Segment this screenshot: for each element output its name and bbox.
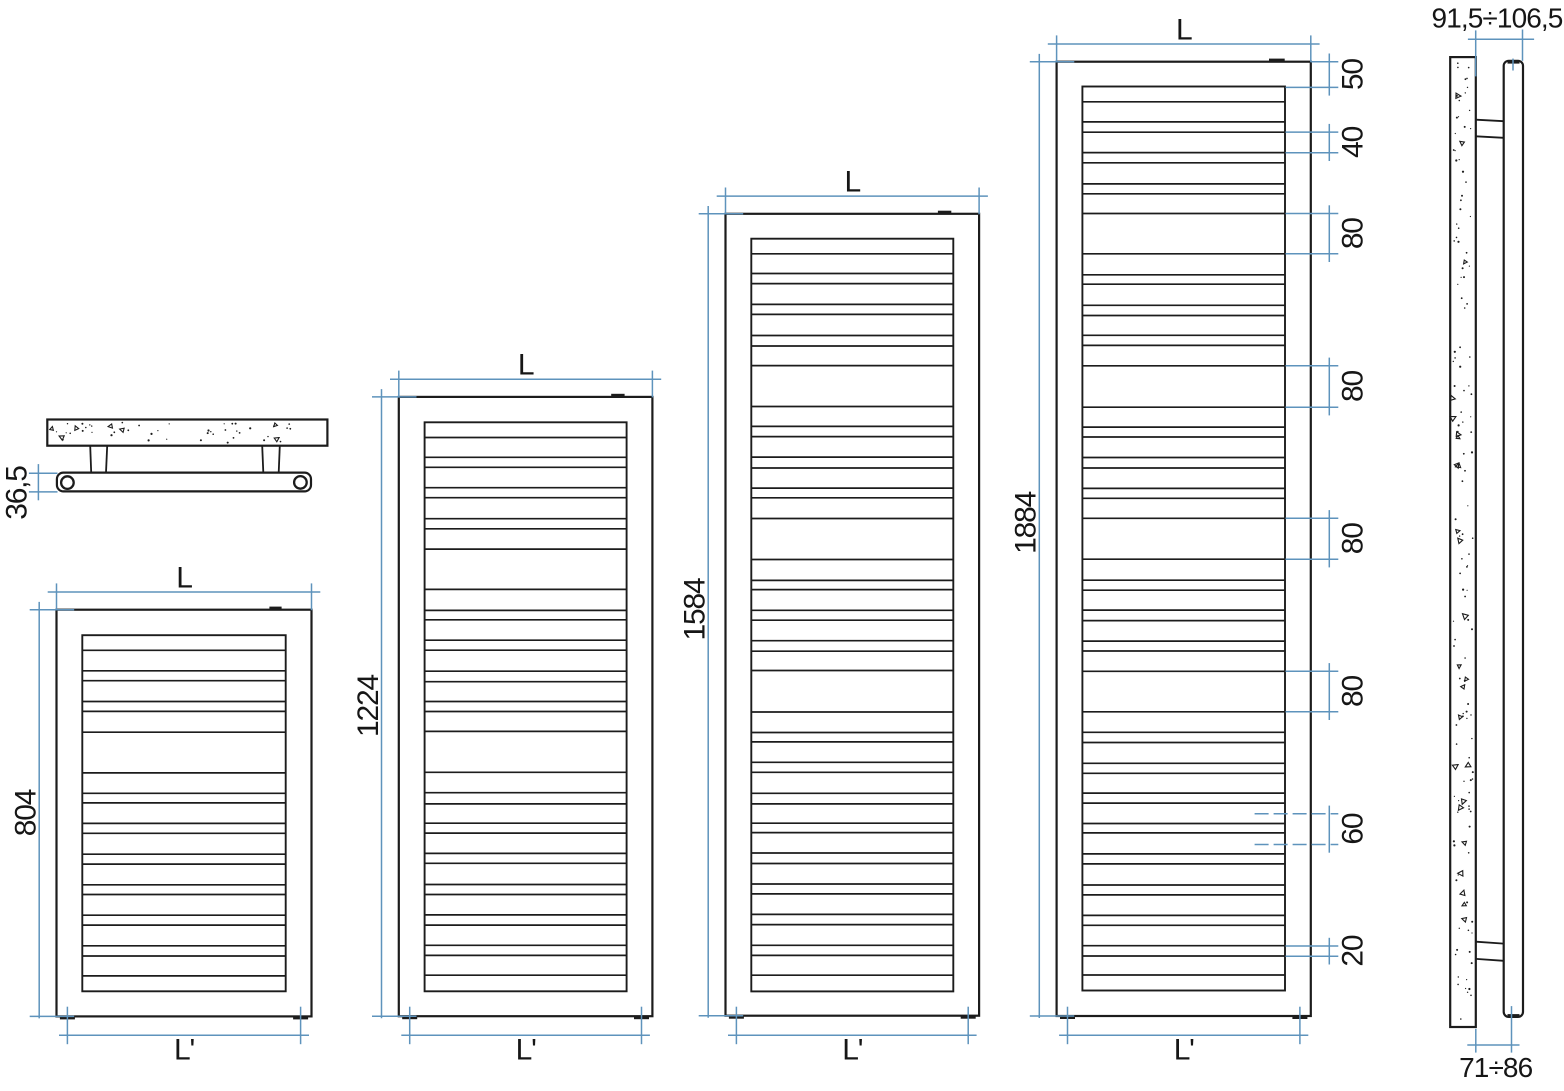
svg-text:1884: 1884 bbox=[1010, 491, 1043, 553]
svg-text:60: 60 bbox=[1337, 813, 1370, 844]
svg-text:804: 804 bbox=[10, 789, 43, 836]
svg-text:40: 40 bbox=[1337, 126, 1370, 157]
svg-text:91,5÷106,5: 91,5÷106,5 bbox=[1432, 3, 1563, 34]
svg-text:1224: 1224 bbox=[352, 675, 385, 737]
svg-text:L': L' bbox=[174, 1034, 194, 1067]
svg-text:L': L' bbox=[1174, 1034, 1194, 1067]
svg-text:L: L bbox=[1176, 13, 1192, 46]
svg-text:80: 80 bbox=[1337, 371, 1370, 402]
svg-text:20: 20 bbox=[1337, 935, 1370, 966]
svg-text:L: L bbox=[176, 561, 192, 594]
svg-text:80: 80 bbox=[1337, 676, 1370, 707]
svg-text:36,5: 36,5 bbox=[1, 466, 34, 520]
svg-text:50: 50 bbox=[1337, 59, 1370, 90]
svg-text:L': L' bbox=[842, 1034, 862, 1067]
svg-text:1584: 1584 bbox=[679, 578, 712, 640]
svg-text:80: 80 bbox=[1337, 218, 1370, 249]
svg-text:L: L bbox=[845, 166, 861, 199]
svg-text:L: L bbox=[518, 349, 534, 382]
svg-text:L': L' bbox=[516, 1034, 536, 1067]
svg-text:71÷86: 71÷86 bbox=[1459, 1052, 1532, 1083]
svg-text:80: 80 bbox=[1337, 523, 1370, 554]
